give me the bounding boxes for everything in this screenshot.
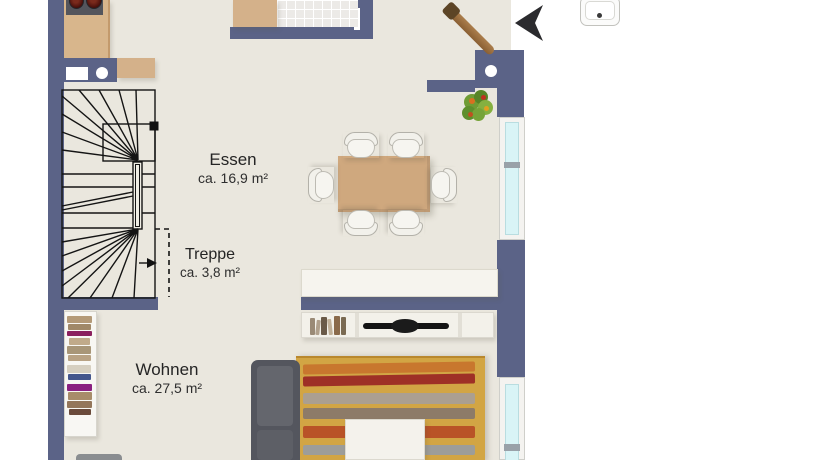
window-lower [499,377,525,460]
dining-chair [308,167,334,203]
lowboard-divider [355,313,359,337]
dining-chair [343,132,379,158]
dining-chair [388,210,424,236]
dining-chair [431,167,457,203]
wc-sink [580,0,620,26]
floor-item-small [76,454,122,460]
stove-burner-icon [86,0,102,9]
plant-icon [460,90,496,124]
rug-stripe [303,373,475,386]
tv-lowboard [301,312,494,338]
dining-table [338,156,430,212]
sofa [251,360,300,460]
counter-peninsula [48,58,117,82]
room-label-wohnen: Wohnen ca. 27,5 m² [117,360,217,397]
wc-tiled-floor [277,0,358,27]
room-name: Treppe [172,246,248,265]
chair-seat [347,139,375,158]
door-pivot-dot [485,65,497,77]
rug-stripe [303,408,475,419]
bookshelf [64,311,97,437]
rug-stripe [303,361,475,374]
counter-sink [66,67,88,80]
room-label-essen: Essen ca. 16,9 m² [183,150,283,187]
window-lower-mullion [504,444,520,451]
sideboard-dining [301,269,498,297]
stair-landing-marker [150,122,159,131]
chair-seat [315,171,334,199]
counter-hob-circle [96,67,108,79]
counter-side-cabinet [117,58,155,78]
chair-seat [431,171,450,199]
stove-burner-icon [69,0,84,9]
room-area: ca. 16,9 m² [183,170,283,187]
window-upper-mullion [504,162,520,168]
staircase [56,84,178,304]
window-upper-glass [505,122,519,235]
room-name: Wohnen [117,360,217,380]
room-area: ca. 27,5 m² [117,380,217,397]
chair-seat [347,210,375,229]
lowboard-divider [458,313,462,337]
room-name: Essen [183,150,283,170]
floor-plan-canvas: Essen ca. 16,9 m² Treppe ca. 3,8 m² Wohn… [0,0,830,460]
wall-wc-right [358,0,373,39]
north-arrow-icon [512,2,546,42]
tv-stand [391,319,419,333]
window-upper [499,117,525,240]
room-area: ca. 3,8 m² [172,265,248,281]
rug-stripe [303,393,475,404]
wall-interior-right [301,297,525,310]
wall-top-center [230,27,373,39]
sofa-cushion [257,430,293,460]
dining-chair [388,132,424,158]
chair-seat [392,210,420,229]
sideboard-top [233,0,277,27]
wall-top-right-b [497,50,524,117]
coffee-table [345,419,425,460]
room-label-treppe: Treppe ca. 3,8 m² [172,246,248,281]
dining-chair [343,210,379,236]
stove [66,0,103,15]
floor-area-top-right [501,0,511,50]
tv [363,319,449,333]
wc-sink-drain [597,13,602,18]
chair-seat [392,139,420,158]
sofa-cushion [257,366,293,426]
